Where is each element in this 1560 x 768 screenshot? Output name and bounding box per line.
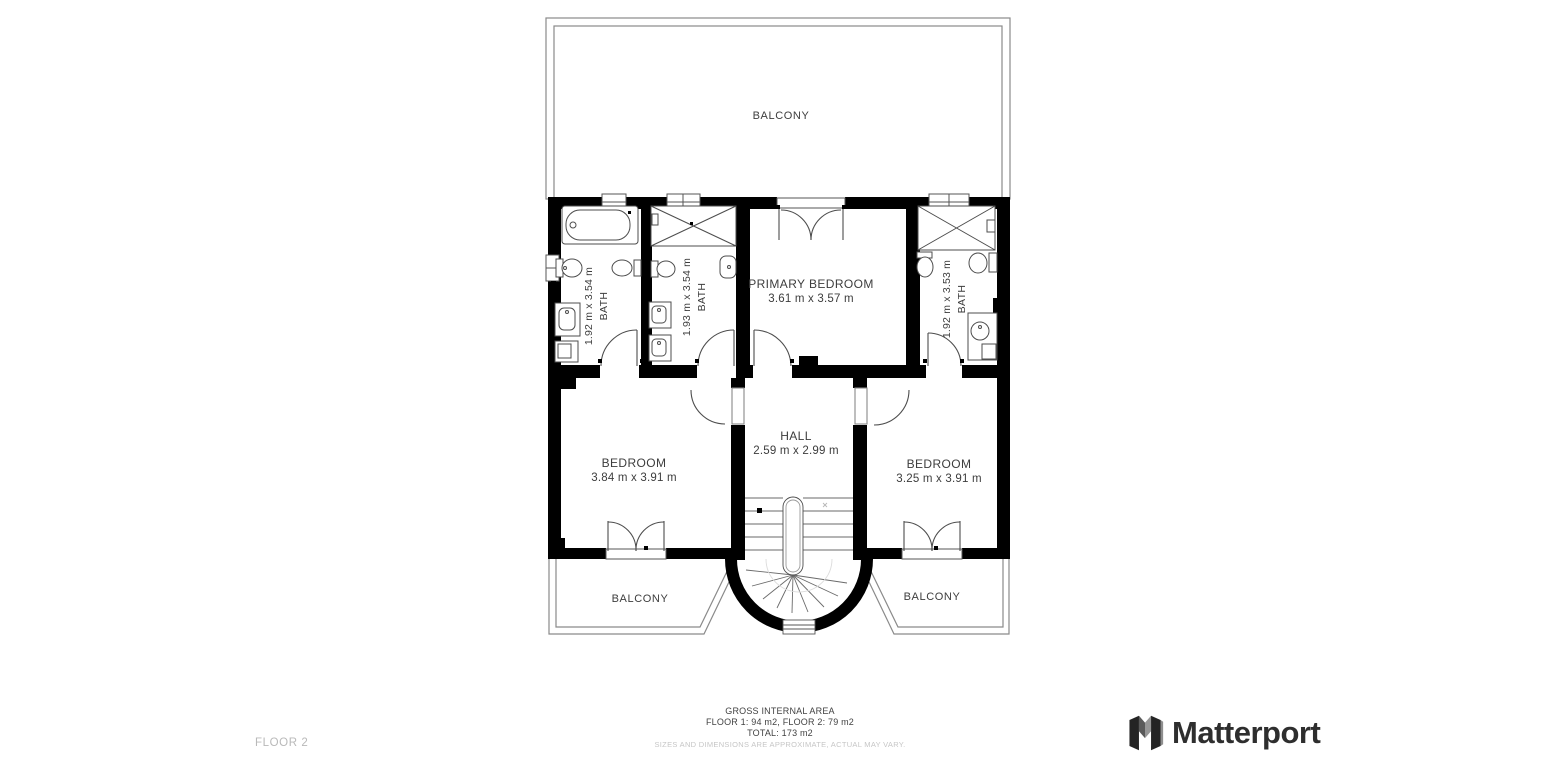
matterport-logo: Matterport: [1126, 712, 1320, 754]
door-bedroom-left: [691, 388, 744, 424]
bath-middle-dims: 1.93 m x 3.54 m: [681, 258, 693, 336]
primary-bedroom-label: PRIMARY BEDROOM: [748, 277, 874, 291]
stair-newel: [783, 497, 803, 575]
balcony-left-label: BALCONY: [612, 593, 669, 605]
floorplan-page: BALCONY 1.92 m x 3.54 m BATH 1.93 m x 3.…: [0, 0, 1560, 768]
bathtub-icon: [562, 206, 638, 244]
door-bath-left: [601, 330, 637, 366]
door-bedroom-right: [855, 388, 909, 425]
balcony-top-outline: [546, 18, 1010, 199]
bedroom-left-label: BEDROOM: [602, 456, 667, 470]
toilet-icon: [917, 252, 933, 277]
floor-label: FLOOR 2: [255, 737, 308, 749]
matterport-logo-icon: [1126, 712, 1164, 754]
shower-middle-icon: [651, 206, 736, 246]
cabinet-icon: [555, 341, 578, 362]
floor-areas-text: FLOOR 1: 94 m2, FLOOR 2: 79 m2: [0, 717, 1560, 728]
bedroom-left-dims: 3.84 m x 3.91 m: [591, 472, 676, 484]
hall-dims: 2.59 m x 2.99 m: [753, 445, 838, 457]
stair-window: [783, 620, 815, 634]
double-vanity-icon: [649, 302, 671, 361]
total-area-text: TOTAL: 173 m2: [0, 728, 1560, 739]
door-primary-bedroom: [754, 330, 791, 366]
bath-right-dims: 1.92 m x 3.53 m: [941, 260, 953, 338]
bedroom-right-label: BEDROOM: [907, 457, 972, 471]
toilet-icon: [556, 259, 582, 277]
door-bath-middle: [698, 330, 734, 366]
bath-right-label: BATH: [956, 285, 968, 314]
toilet-icon: [969, 253, 997, 273]
disclaimer-text: SIZES AND DIMENSIONS ARE APPROXIMATE, AC…: [0, 739, 1560, 751]
floor-plan: BALCONY 1.92 m x 3.54 m BATH 1.93 m x 3.…: [0, 0, 1560, 768]
primary-bedroom-dims: 3.61 m x 3.57 m: [768, 293, 853, 305]
bidet-icon: [720, 256, 736, 278]
toilet-icon: [651, 261, 675, 277]
walls: [548, 197, 1010, 560]
bidet-icon: [612, 260, 641, 276]
hall-label: HALL: [780, 429, 812, 443]
bath-middle-label: BATH: [696, 283, 708, 312]
brand-name: Matterport: [1172, 715, 1320, 751]
bedroom-right-dims: 3.25 m x 3.91 m: [896, 473, 981, 485]
gross-internal-area-title: GROSS INTERNAL AREA: [0, 706, 1560, 717]
balcony-top-label: BALCONY: [753, 110, 810, 122]
french-door-bedroom-left: [608, 521, 664, 551]
vanity-icon: [555, 303, 580, 336]
french-door-primary: [779, 209, 843, 240]
balcony-right-label: BALCONY: [904, 591, 961, 603]
shower-right-icon: [918, 206, 995, 250]
french-door-bedroom-right: [904, 521, 960, 551]
bath-left-dims: 1.92 m x 3.54 m: [583, 267, 595, 345]
threshold-french-primary: [777, 198, 845, 208]
vanity-round-icon: [968, 313, 997, 360]
bath-left-label: BATH: [598, 292, 610, 321]
footer-area: GROSS INTERNAL AREA FLOOR 1: 94 m2, FLOO…: [0, 706, 1560, 751]
